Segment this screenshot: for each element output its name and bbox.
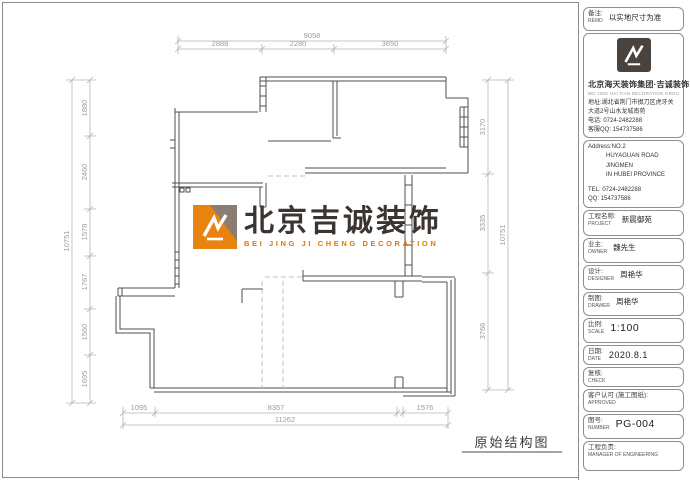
jicheng-logo-icon — [193, 205, 237, 249]
company-phone: 电话: 0724-2482288 — [588, 117, 679, 126]
haitian-logo-icon — [617, 38, 651, 72]
field-designer: 设计: DESIGNER 周艳华 — [583, 265, 684, 290]
watermark-company-subtitle: BEI JING JI CHENG DECORATION — [244, 239, 442, 248]
company-tagline: BEI JING HAI TIAN DECORATION GROUP JICHE… — [588, 91, 679, 96]
dim-left-seg3: 1578 — [80, 224, 89, 241]
drawing-title: 原始结构图 — [474, 435, 549, 450]
dim-left-seg5: 1560 — [80, 324, 89, 341]
dim-left-overall: 10751 — [62, 231, 71, 252]
designer-value: 周艳华 — [620, 269, 643, 280]
owner-value: 魏先生 — [613, 242, 636, 253]
dim-right-overall: 10751 — [498, 225, 507, 246]
tel-en: TEL: 0724-2482288 — [588, 186, 679, 195]
approved-label-cn: 客户认可 (施工图纸): — [588, 392, 679, 400]
designer-label-en: DESIGNER — [588, 276, 614, 282]
remark-box: 备注: REMD 以实地尺寸为准 — [583, 7, 684, 31]
dim-right-seg2: 3335 — [478, 215, 487, 232]
field-number: 图号: NUMBER PG-004 — [583, 414, 684, 439]
floor-plan-area: 9058 2888 2280 3650 10751 1880 2460 1578… — [0, 0, 578, 482]
company-address: 地址:湖北省荆门市掇刀区虎牙关大道2号山水龙城南苑 — [588, 99, 679, 117]
dim-left-seg4: 1767 — [80, 274, 89, 291]
drawer-label-en: DRAWER — [588, 303, 610, 309]
manager-label-en: MANAGER OF ENGINEERING — [588, 452, 658, 458]
company-box: 北京海天装饰集团·吉诚装饰 BEI JING HAI TIAN DECORATI… — [583, 33, 684, 138]
dim-left-seg1: 1880 — [80, 100, 89, 117]
manager-label-cn: 工程负责: — [588, 444, 679, 452]
dim-left-seg2: 2460 — [80, 164, 89, 181]
field-drawer: 制图: DRAWER 周艳华 — [583, 292, 684, 316]
owner-label-en: OWNER — [588, 249, 607, 255]
dim-top-seg2: 2280 — [290, 39, 307, 48]
owner-label-cn: 业主: — [588, 241, 607, 249]
field-manager: 工程负责: MANAGER OF ENGINEERING — [583, 441, 684, 471]
project-value: 新晨御苑 — [622, 214, 652, 225]
company-name: 北京海天装饰集团·吉诚装饰 — [588, 79, 679, 90]
number-label-cn: 图号: — [588, 417, 610, 425]
dim-right-seg1: 3170 — [478, 119, 487, 136]
date-label-en: DATE — [588, 356, 603, 362]
check-label-en: CHECK — [588, 378, 606, 384]
dim-top-seg3: 3650 — [382, 39, 399, 48]
number-label-en: NUMBER — [588, 425, 610, 431]
scale-label-en: SCALE — [588, 329, 604, 335]
drawing-title-group: 原始结构图 — [462, 435, 562, 452]
field-scale: 比例: SCALE 1:100 — [583, 318, 684, 343]
watermark-company-name: 北京吉诚装饰 — [244, 205, 442, 238]
address-en-line2: HUYAGUAN ROAD JINGMEN — [588, 152, 679, 171]
field-approved: 客户认可 (施工图纸): APPROVED — [583, 389, 684, 412]
dim-bottom-seg1: 1095 — [131, 403, 148, 412]
project-label-cn: 工程名称: — [588, 213, 616, 221]
scale-value: 1:100 — [610, 322, 639, 334]
remark-value: 以实地尺寸为准 — [609, 12, 662, 23]
field-owner: 业主: OWNER 魏先生 — [583, 238, 684, 263]
dim-top-seg1: 2888 — [212, 39, 229, 48]
number-value: PG-004 — [616, 418, 655, 430]
scale-label-cn: 比例: — [588, 321, 604, 329]
contact-en-box: Address:NO.2 HUYAGUAN ROAD JINGMEN IN HU… — [583, 140, 684, 208]
drawer-value: 周艳华 — [616, 296, 639, 307]
remark-label-en: REMD — [588, 18, 603, 24]
field-date: 日期: DATE 2020.8.1 — [583, 345, 684, 365]
address-en-line1: Address:NO.2 — [588, 143, 679, 152]
project-label-en: PROJECT — [588, 221, 616, 227]
address-en-line3: IN HUBEI PROVINCE — [588, 171, 679, 180]
remark-label-cn: 备注: — [588, 10, 603, 18]
dim-bottom-seg2: 8357 — [268, 403, 285, 412]
date-value: 2020.8.1 — [609, 350, 648, 360]
dim-left-seg6: 1695 — [80, 371, 89, 388]
qq-en: QQ: 154737586 — [588, 195, 679, 204]
field-project: 工程名称: PROJECT 新晨御苑 — [583, 210, 684, 236]
drawing-sheet: 9058 2888 2280 3650 10751 1880 2460 1578… — [0, 0, 690, 482]
company-watermark: 北京吉诚装饰 BEI JING JI CHENG DECORATION — [193, 205, 442, 249]
dim-right-seg3: 3766 — [478, 323, 487, 340]
dim-bottom-seg3: 1576 — [417, 403, 434, 412]
approved-label-en: APPROVED — [588, 400, 679, 406]
drawer-label-cn: 制图: — [588, 295, 610, 303]
dim-bottom-overall: 11262 — [275, 415, 295, 424]
designer-label-cn: 设计: — [588, 268, 614, 276]
date-label-cn: 日期: — [588, 348, 603, 356]
field-check: 复核: CHECK — [583, 367, 684, 387]
company-qq: 客服QQ: 154737586 — [588, 126, 679, 135]
title-block: 备注: REMD 以实地尺寸为准 北京海天装饰集团·吉诚装饰 BEI JING … — [578, 2, 688, 480]
check-label-cn: 复核: — [588, 370, 606, 378]
